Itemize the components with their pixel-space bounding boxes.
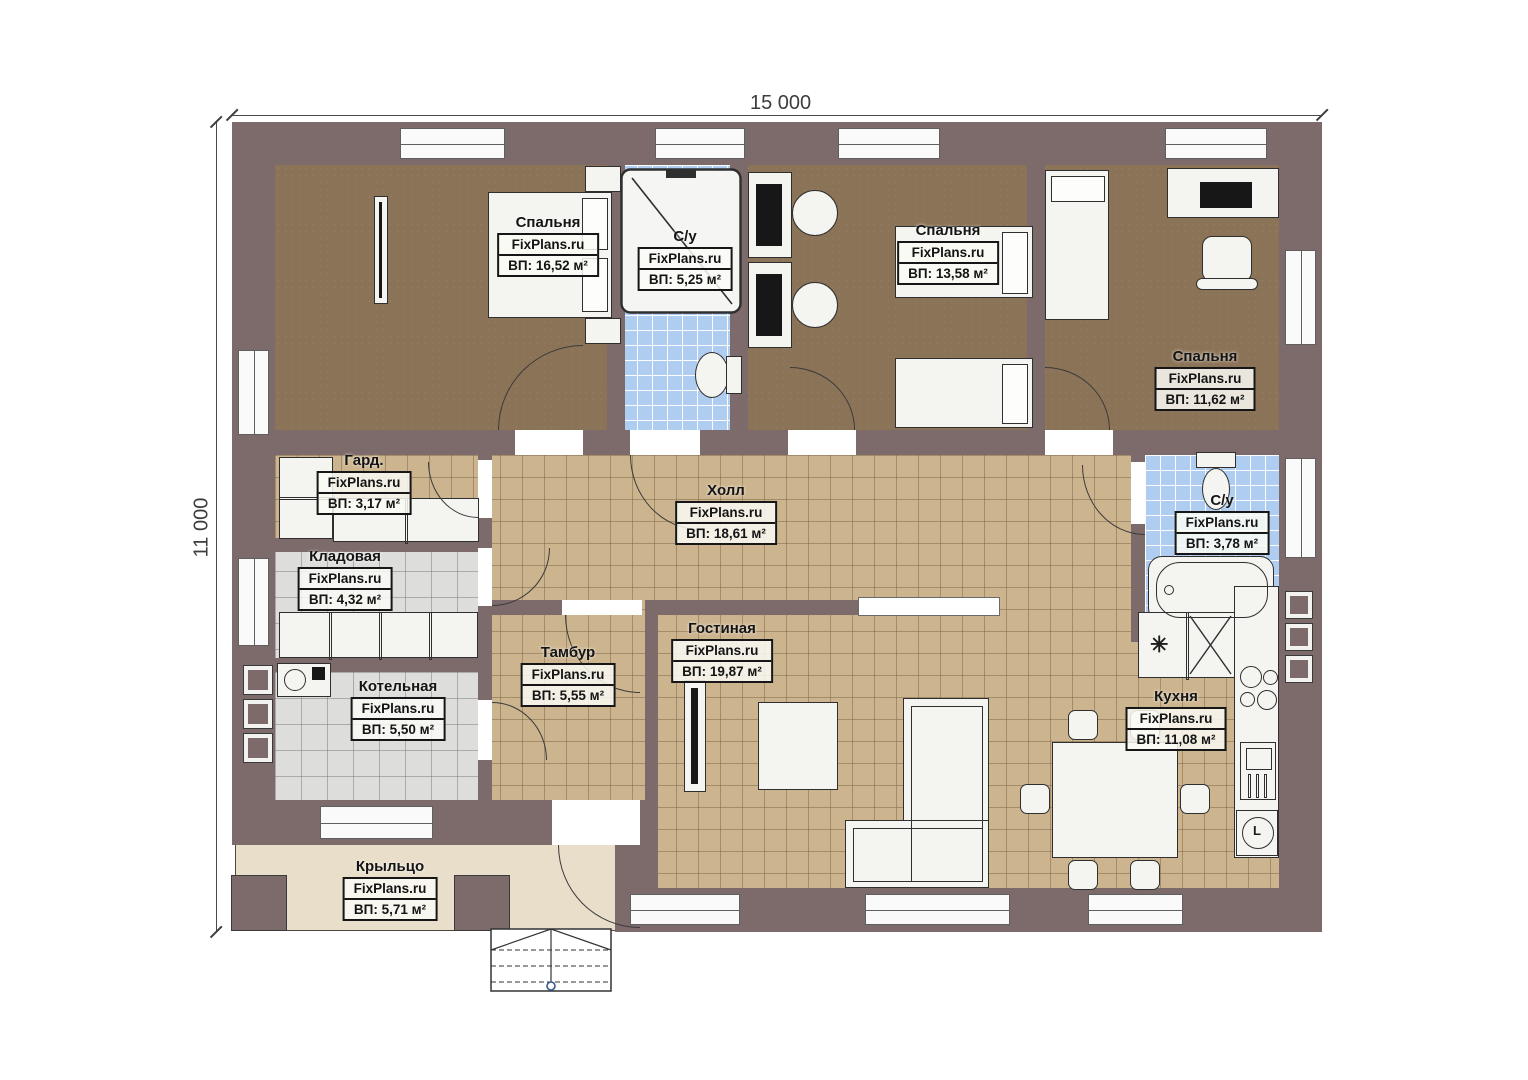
door-opening	[515, 430, 583, 455]
pillow	[1002, 232, 1028, 294]
watermark: FixPlans.ru	[899, 243, 997, 264]
boiler-switch	[312, 667, 325, 680]
chimney-block	[1286, 656, 1312, 682]
window	[630, 894, 740, 925]
room-title: Спальня	[897, 222, 999, 239]
room-label-wardrobe: Гард. FixPlans.ruВП: 3,17 м²	[317, 452, 412, 515]
room-title: Котельная	[351, 678, 446, 695]
boiler-gauge	[284, 669, 306, 691]
window	[320, 806, 433, 839]
room-label-bedroom-1: Спальня FixPlans.ruВП: 16,52 м²	[497, 214, 599, 277]
room-label-porch: Крыльцо FixPlans.ruВП: 5,71 м²	[343, 858, 438, 921]
porch-pillar	[232, 876, 286, 930]
room-title: Холл	[675, 482, 777, 499]
wide-passage-opening	[858, 597, 1000, 616]
room-area: ВП: 13,58 м²	[899, 264, 997, 283]
porch-pillar	[455, 876, 509, 930]
dining-chair	[1068, 710, 1098, 740]
wall-tambour-living	[645, 600, 658, 888]
wall-mirror-line	[379, 202, 382, 298]
watermark: FixPlans.ru	[673, 641, 771, 662]
shelf-divider	[329, 612, 332, 660]
office-chair-back	[1196, 278, 1258, 290]
room-title: Крыльцо	[343, 858, 438, 875]
door-opening	[788, 430, 856, 455]
room-area: ВП: 11,62 м²	[1157, 390, 1254, 409]
room-title: Гард.	[317, 452, 412, 469]
dimension-line-top	[232, 115, 1322, 116]
office-chair	[1202, 236, 1252, 282]
fridge-icon: ✳	[1150, 632, 1168, 658]
door-opening	[1045, 430, 1113, 455]
room-area: ВП: 5,71 м²	[345, 900, 436, 919]
room-area: ВП: 3,78 м²	[1177, 534, 1268, 553]
window	[1285, 250, 1316, 345]
pillow	[1051, 176, 1105, 202]
watermark: FixPlans.ru	[300, 569, 391, 590]
watermark: FixPlans.ru	[499, 235, 597, 256]
room-title: С/у	[1175, 492, 1270, 509]
washing-machine-icon: L	[1253, 823, 1261, 838]
watermark: FixPlans.ru	[523, 665, 614, 686]
chair	[792, 190, 838, 236]
room-title: Спальня	[1155, 348, 1256, 365]
stairs	[490, 928, 612, 992]
room-area: ВП: 4,32 м²	[300, 590, 391, 609]
watermark: FixPlans.ru	[640, 249, 731, 270]
oven-vent	[1248, 774, 1251, 798]
room-area: ВП: 5,25 м²	[640, 270, 731, 289]
window	[1088, 894, 1183, 925]
watermark: FixPlans.ru	[677, 503, 775, 524]
window	[238, 558, 269, 646]
wall-top	[232, 122, 1322, 165]
watermark: FixPlans.ru	[1157, 369, 1254, 390]
dining-chair	[1068, 860, 1098, 890]
bathtub-drain	[1164, 585, 1174, 595]
pillow	[1002, 364, 1028, 424]
stove-burner	[1257, 690, 1277, 710]
window	[400, 128, 505, 159]
dimension-line-left	[216, 122, 217, 932]
watermark: FixPlans.ru	[319, 473, 410, 494]
room-title: Тамбур	[521, 644, 616, 661]
door-opening	[478, 548, 492, 606]
room-label-bedroom-2: Спальня FixPlans.ruВП: 13,58 м²	[897, 222, 999, 285]
door-opening	[478, 460, 492, 518]
nightstand	[585, 318, 621, 344]
dining-chair	[1130, 860, 1160, 890]
dining-chair	[1020, 784, 1050, 814]
stove-burner	[1240, 692, 1255, 707]
room-label-kitchen: Кухня FixPlans.ruВП: 11,08 м²	[1126, 688, 1227, 751]
monitor	[756, 184, 782, 246]
window	[838, 128, 940, 159]
watermark: FixPlans.ru	[353, 699, 444, 720]
tv-screen	[691, 688, 698, 784]
room-label-bathroom-2: С/у FixPlans.ruВП: 3,78 м²	[1175, 492, 1270, 555]
watermark: FixPlans.ru	[1128, 709, 1225, 730]
watermark: FixPlans.ru	[1177, 513, 1268, 534]
chimney-block	[1286, 624, 1312, 650]
room-label-bedroom-3: Спальня FixPlans.ruВП: 11,62 м²	[1155, 348, 1256, 411]
window	[1285, 458, 1316, 558]
chair	[792, 282, 838, 328]
room-title: Кладовая	[298, 548, 393, 565]
floor-plan: 15 000 11 000	[0, 0, 1528, 1080]
room-title: Гостиная	[671, 620, 773, 637]
dining-table	[1052, 742, 1178, 858]
dining-chair	[1180, 784, 1210, 814]
chimney-block	[244, 666, 272, 694]
oven-vent	[1256, 774, 1259, 798]
toilet-bowl	[695, 352, 729, 398]
chimney-block	[1286, 592, 1312, 618]
door-opening	[478, 700, 492, 760]
room-area: ВП: 16,52 м²	[499, 256, 597, 275]
shelf-divider	[429, 612, 432, 660]
room-label-tambour: Тамбур FixPlans.ruВП: 5,55 м²	[521, 644, 616, 707]
shelf-divider	[379, 612, 382, 660]
room-title: Кухня	[1126, 688, 1227, 705]
room-title: Спальня	[497, 214, 599, 231]
toilet-tank	[1196, 452, 1236, 468]
window	[238, 350, 269, 435]
chimney-block	[244, 734, 272, 762]
room-area: ВП: 19,87 м²	[673, 662, 771, 681]
door-opening	[630, 430, 700, 455]
room-label-boiler: Котельная FixPlans.ruВП: 5,50 м²	[351, 678, 446, 741]
wall-hall-living	[645, 600, 860, 615]
watermark: FixPlans.ru	[345, 879, 436, 900]
laptop	[1200, 182, 1252, 208]
room-label-pantry: Кладовая FixPlans.ruВП: 4,32 м²	[298, 548, 393, 611]
stove-burner	[1263, 670, 1278, 685]
dimension-height-label: 11 000	[190, 488, 213, 568]
window	[655, 128, 745, 159]
nightstand	[585, 166, 621, 192]
oven-window	[1246, 748, 1272, 770]
dimension-width-label: 15 000	[740, 92, 821, 115]
window	[865, 894, 1010, 925]
entrance-door-opening	[552, 800, 640, 845]
room-area: ВП: 18,61 м²	[677, 524, 775, 543]
oven-vent	[1264, 774, 1267, 798]
room-area: ВП: 3,17 м²	[319, 494, 410, 513]
room-label-hall: Холл FixPlans.ruВП: 18,61 м²	[675, 482, 777, 545]
coffee-table	[758, 702, 838, 790]
toilet-tank	[726, 356, 742, 394]
chimney-block	[244, 700, 272, 728]
window	[1165, 128, 1267, 159]
room-label-bathroom-1: С/у FixPlans.ruВП: 5,25 м²	[638, 228, 733, 291]
wall-bedrooms-hall	[275, 430, 1279, 455]
sofa-cushion	[853, 828, 983, 882]
room-area: ВП: 5,50 м²	[353, 720, 444, 739]
room-area: ВП: 5,55 м²	[523, 686, 614, 705]
door-opening	[562, 600, 642, 615]
stove-burner	[1240, 666, 1262, 688]
room-area: ВП: 11,08 м²	[1128, 730, 1225, 749]
room-label-living: Гостиная FixPlans.ruВП: 19,87 м²	[671, 620, 773, 683]
sink-cabinet-icon	[1188, 614, 1233, 676]
monitor	[756, 274, 782, 336]
room-title: С/у	[638, 228, 733, 245]
